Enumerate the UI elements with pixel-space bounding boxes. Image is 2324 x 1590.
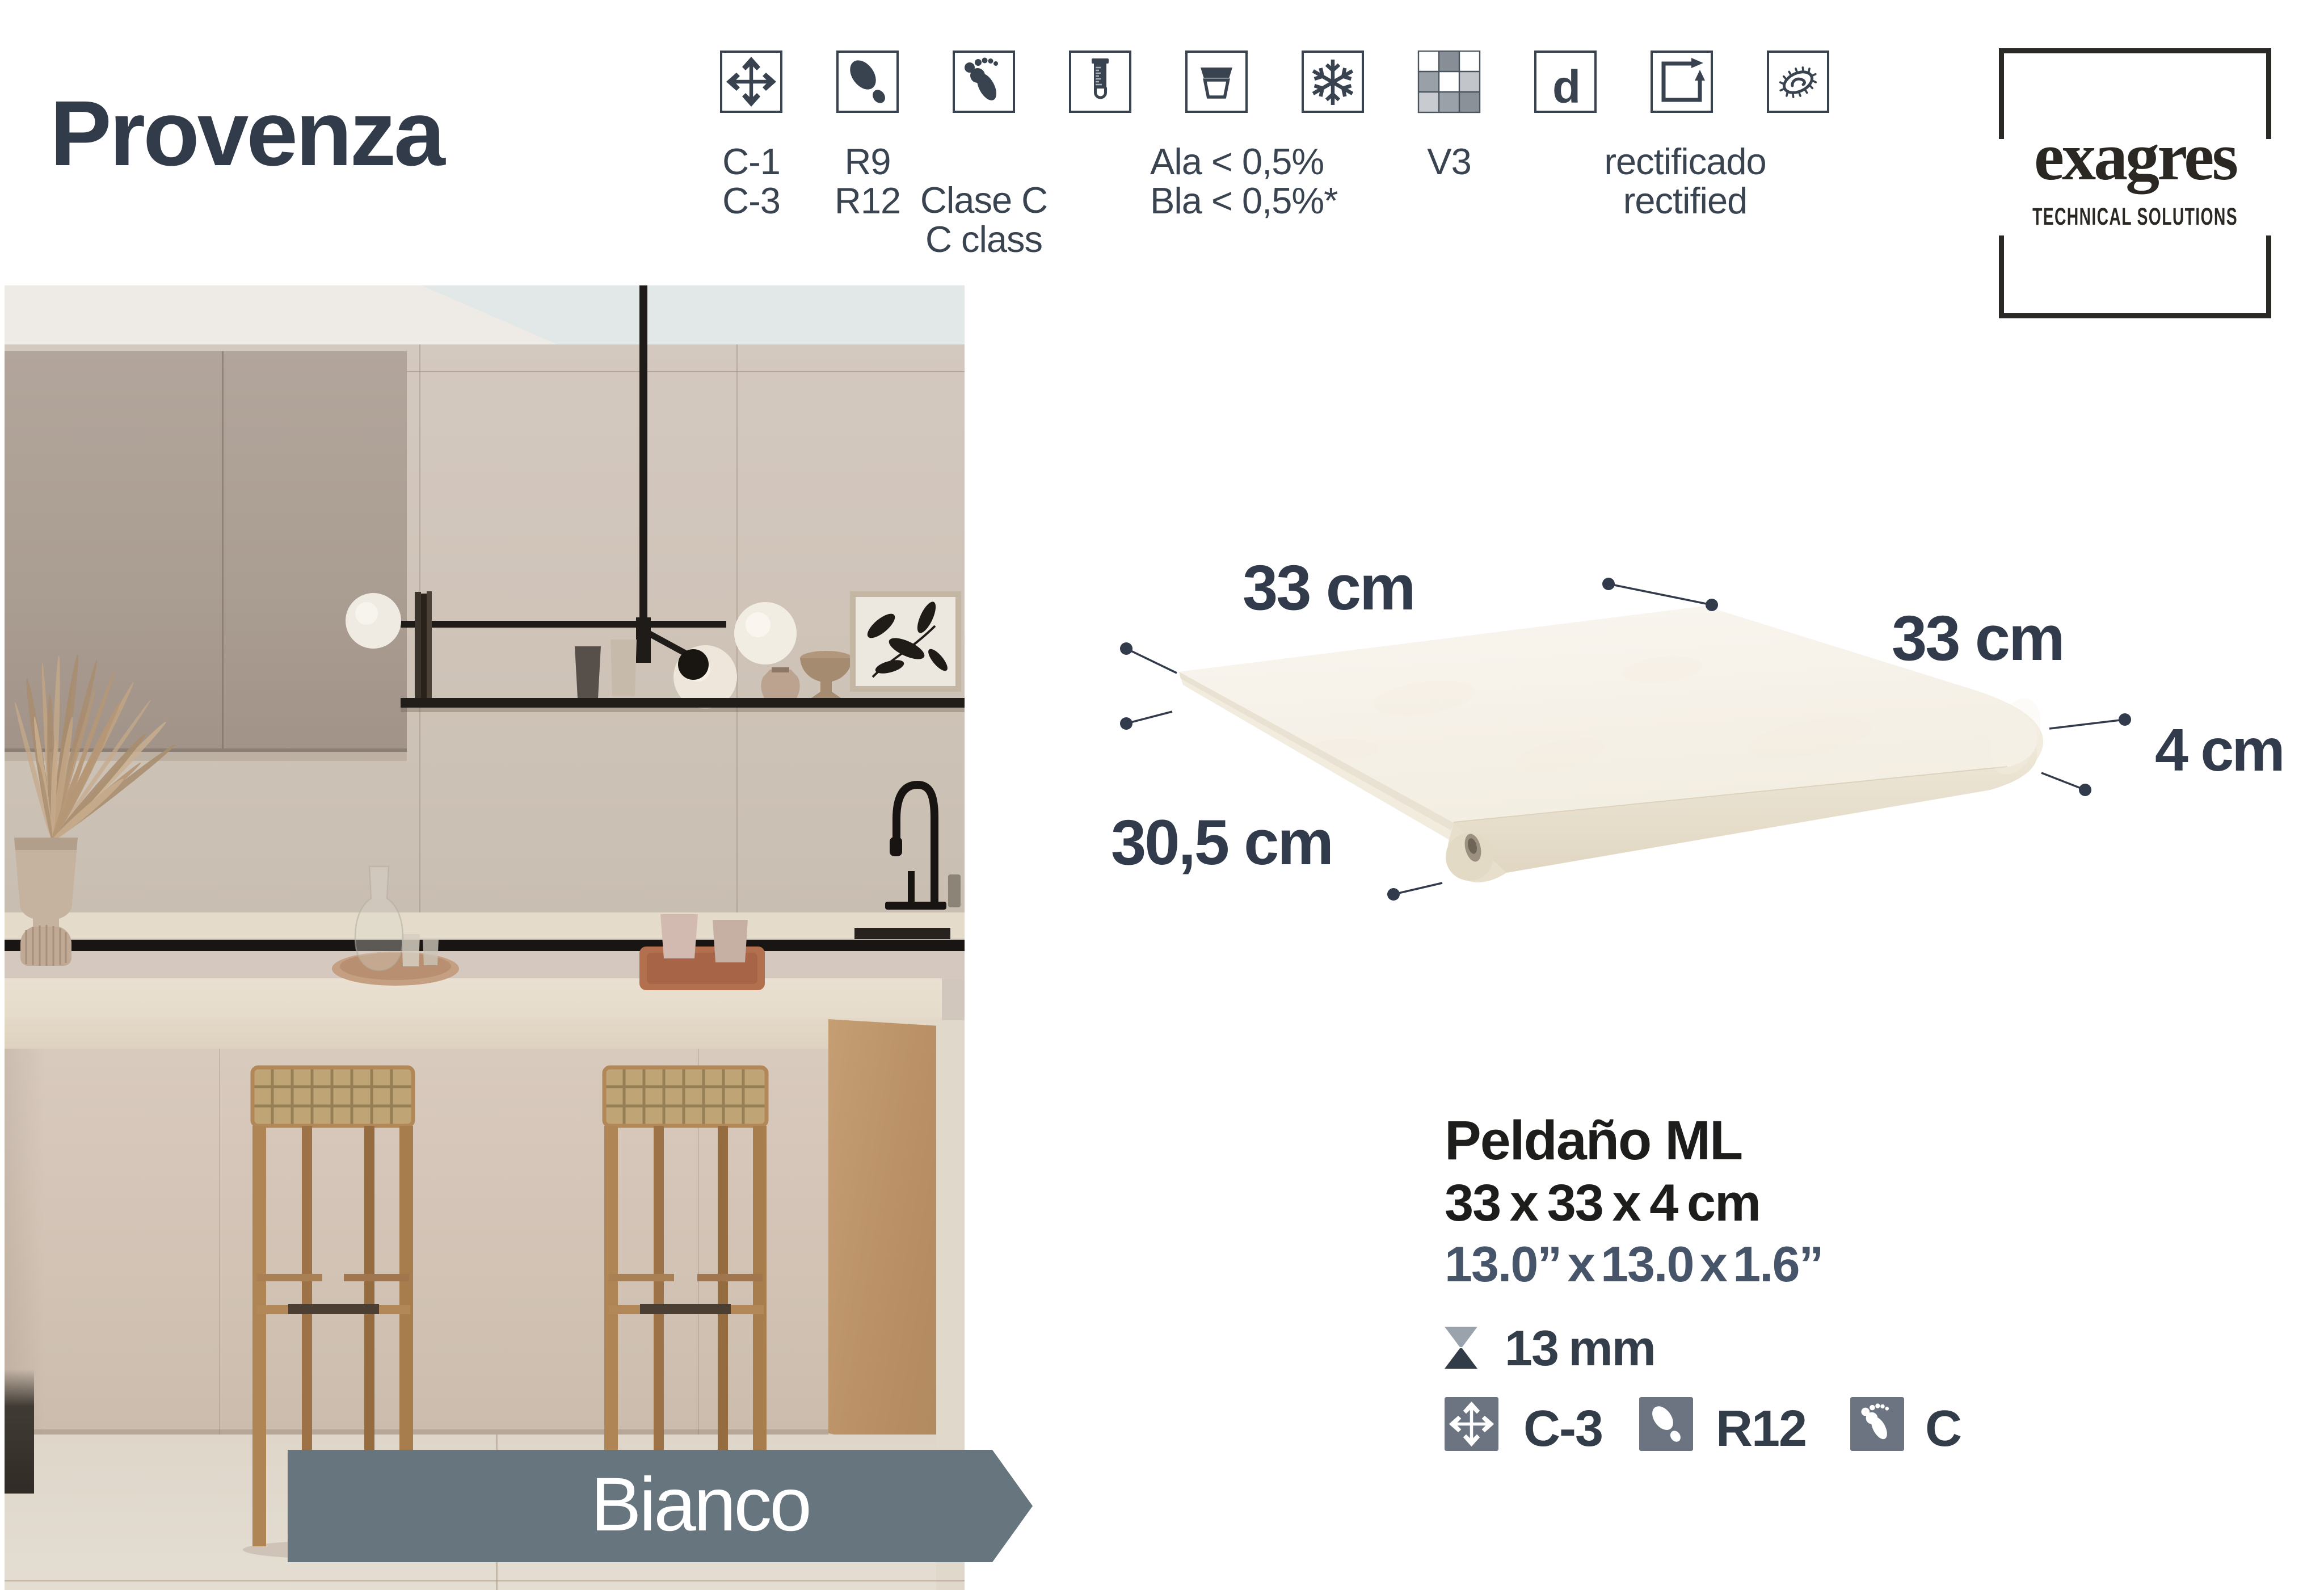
svg-text:TECHNICAL SOLUTIONS: TECHNICAL SOLUTIONS: [2032, 203, 2238, 230]
svg-text:Bianco: Bianco: [591, 1462, 810, 1547]
svg-text:exagres: exagres: [2034, 119, 2237, 195]
svg-text:d: d: [1552, 61, 1581, 113]
